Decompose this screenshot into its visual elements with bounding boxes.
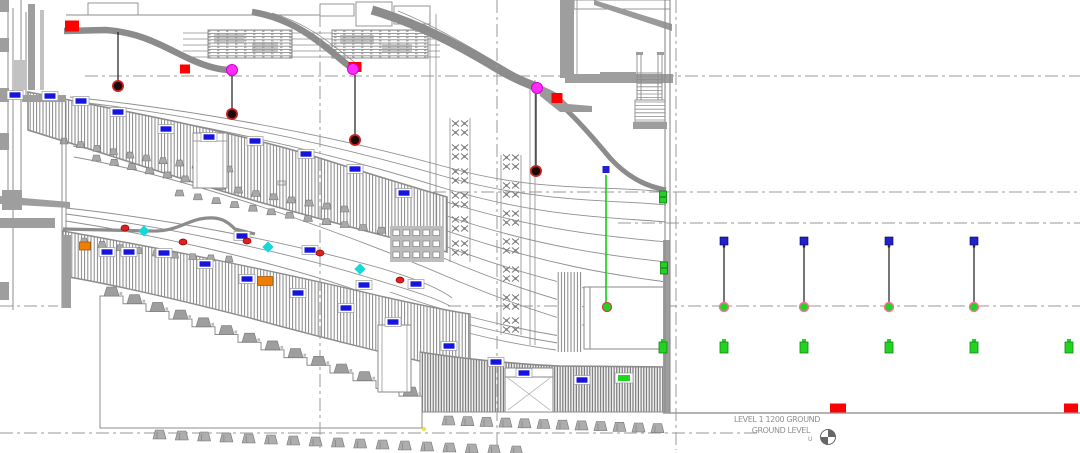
magenta-light[interactable] [348, 64, 359, 75]
seat-symbol [98, 241, 106, 247]
wall-device[interactable] [660, 191, 667, 203]
seat-symbol [176, 160, 184, 166]
seat-symbol [354, 439, 367, 448]
pendant-light[interactable] [226, 76, 238, 120]
red-box-element[interactable] [180, 65, 190, 74]
seat-symbol [340, 206, 349, 212]
seat-symbol [287, 197, 296, 203]
seat-symbol [304, 216, 313, 222]
level-annotation: LEVEL 1 1200 GROUND GROUND LEVEL U [734, 415, 836, 445]
seat-symbol [145, 168, 154, 174]
seat-symbol [632, 423, 645, 432]
seat-symbol [175, 431, 188, 440]
seat-symbol [340, 222, 349, 228]
seat-symbol [159, 158, 167, 164]
element-tag[interactable] [488, 358, 504, 367]
door-mid [378, 325, 411, 392]
seat-symbol [181, 176, 190, 182]
staircase [600, 52, 667, 129]
element-tag[interactable] [197, 260, 213, 269]
sprinkler-element[interactable] [720, 339, 728, 353]
element-tag[interactable] [247, 137, 263, 146]
seat-symbol [613, 422, 626, 431]
seat-symbol [488, 445, 501, 453]
seat-symbol [575, 421, 588, 430]
sprinkler-element[interactable] [970, 339, 978, 353]
seat-symbol [110, 159, 119, 165]
seat-symbol [230, 202, 239, 208]
element-tag[interactable] [302, 246, 318, 255]
seat-symbol [287, 436, 300, 445]
seat-symbol [92, 155, 101, 161]
element-tag[interactable] [347, 165, 363, 174]
level-label-line1: LEVEL 1 1200 GROUND [734, 415, 820, 424]
seat-symbol [248, 205, 257, 211]
element-tag[interactable] [7, 91, 23, 100]
seat-symbol [510, 446, 523, 453]
seat-symbol [267, 209, 276, 215]
seat-symbol [269, 194, 278, 200]
seat-symbol [376, 440, 389, 449]
magenta-light[interactable] [532, 83, 543, 94]
left-wall [0, 0, 71, 310]
element-tag[interactable] [298, 150, 314, 159]
element-tag[interactable] [385, 318, 401, 327]
element-tag[interactable] [239, 275, 255, 284]
red-device-marker[interactable] [179, 239, 187, 245]
seat-symbol [556, 420, 569, 429]
seat-symbol [153, 430, 166, 439]
pendant-light[interactable] [349, 75, 361, 146]
element-tag[interactable] [408, 280, 424, 289]
red-device-marker[interactable] [121, 225, 129, 231]
hanger-element[interactable] [720, 237, 729, 312]
hanger-element[interactable] [885, 237, 894, 312]
seat-symbol [225, 256, 233, 262]
element-tag[interactable] [42, 92, 58, 101]
cyan-device-marker[interactable] [262, 241, 273, 252]
seat-symbol [305, 200, 314, 206]
seat-symbol [359, 224, 368, 230]
seat-symbol [242, 434, 255, 443]
seat-symbol [219, 326, 234, 335]
seat-symbol [77, 142, 85, 148]
cyan-device-marker[interactable] [138, 225, 149, 236]
stage-rear-hatch [557, 272, 582, 352]
element-tag[interactable] [338, 304, 354, 313]
seat-symbol [143, 155, 151, 161]
red-box-element[interactable] [552, 93, 563, 103]
seat-symbol [60, 138, 68, 144]
seat-symbol [127, 295, 142, 304]
seat-symbol [265, 341, 280, 350]
seat-symbol [594, 422, 607, 431]
element-tag[interactable] [110, 108, 126, 117]
seat-symbol [193, 194, 202, 200]
red-device-marker[interactable] [396, 277, 404, 283]
seat-symbol [334, 364, 349, 373]
seat-symbol [163, 172, 172, 178]
seat-symbol [198, 432, 211, 441]
red-device-marker[interactable] [243, 238, 251, 244]
pendant-light[interactable] [530, 94, 542, 177]
element-tag[interactable] [73, 97, 89, 106]
stage-opening [584, 287, 668, 349]
element-tag[interactable] [290, 289, 306, 298]
hanger-element[interactable] [800, 237, 809, 312]
seat-symbol [173, 310, 188, 319]
seat-symbol [357, 372, 372, 381]
wall-device[interactable] [661, 262, 668, 274]
cyan-device-marker[interactable] [354, 263, 365, 274]
seat-symbol [461, 417, 474, 426]
seat-symbol [126, 152, 134, 158]
green-element-tag[interactable] [615, 373, 633, 383]
seat-symbol [150, 302, 165, 311]
seat-symbol [212, 198, 221, 204]
red-box-element[interactable] [830, 404, 846, 413]
seat-symbol [651, 424, 664, 433]
seat-symbol [220, 433, 233, 442]
seat-symbol [421, 442, 434, 451]
red-device-marker[interactable] [316, 250, 324, 256]
orange-unit-marker[interactable] [80, 242, 91, 250]
magenta-light[interactable] [227, 65, 238, 76]
sprinkler-element[interactable] [800, 339, 808, 353]
seat-symbol [311, 356, 326, 365]
element-tag[interactable] [574, 376, 590, 385]
seat-symbol [377, 227, 386, 233]
sprinkler-element[interactable] [1065, 339, 1073, 353]
element-tag[interactable] [201, 133, 217, 142]
element-tag[interactable] [396, 189, 412, 198]
seat-symbol [251, 190, 260, 196]
seat-symbol [265, 435, 278, 444]
seat-symbol [322, 219, 331, 225]
element-tag[interactable] [158, 125, 174, 134]
seat-symbol [442, 416, 455, 425]
seat-symbol [189, 254, 197, 260]
pendant-light[interactable] [112, 32, 124, 92]
seat-symbol [518, 419, 531, 428]
element-tag[interactable] [156, 249, 172, 258]
seat-symbol [242, 333, 257, 342]
seat-symbol [331, 438, 344, 447]
section-drawing-viewport: LEVEL 1 1200 GROUND GROUND LEVEL U [0, 0, 1080, 453]
seat-symbol [465, 444, 478, 453]
element-tag[interactable] [99, 248, 115, 257]
sprinkler-element[interactable] [885, 339, 893, 353]
seat-symbol [443, 443, 456, 452]
hanger-and-sprinkler-elements[interactable] [603, 166, 1074, 353]
yellow-dot-marker[interactable] [422, 427, 426, 431]
seat-symbol [196, 318, 211, 327]
element-tag[interactable] [121, 248, 137, 257]
red-box-element[interactable] [65, 21, 79, 32]
seat-symbol [93, 145, 101, 151]
element-tag[interactable] [356, 281, 372, 290]
seat-symbol [234, 187, 243, 193]
seat-symbol [288, 349, 303, 358]
level-label-line2: GROUND LEVEL [752, 426, 811, 435]
seat-symbol [104, 287, 119, 296]
level-label-line3: U [808, 436, 812, 443]
orange-unit-marker[interactable] [258, 277, 273, 286]
level-datum-icon[interactable] [821, 430, 836, 445]
seat-symbol [537, 420, 550, 429]
seat-symbol [499, 418, 512, 427]
hanger-element[interactable] [970, 237, 979, 312]
seat-symbol [127, 164, 136, 170]
seat-symbol [398, 441, 411, 450]
equipment-cluster [390, 226, 444, 262]
seat-symbol [175, 190, 184, 196]
seat-symbol [322, 203, 331, 209]
element-tag[interactable] [516, 369, 532, 378]
element-tag[interactable] [441, 342, 457, 351]
stage-tower-lines [430, 0, 577, 345]
seat-symbol [285, 212, 294, 218]
seat-symbol [480, 417, 493, 426]
section-drawing: LEVEL 1 1200 GROUND GROUND LEVEL U [0, 0, 1080, 453]
truss-columns [450, 118, 521, 335]
red-box-element[interactable] [1064, 404, 1078, 413]
seat-symbol [110, 149, 118, 155]
